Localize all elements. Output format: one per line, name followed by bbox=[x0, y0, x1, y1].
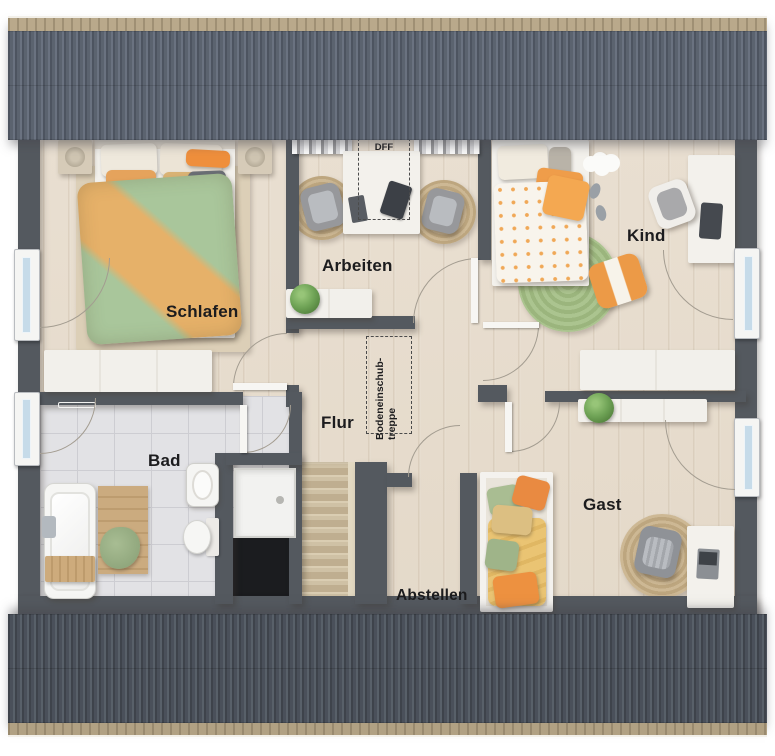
wardrobe-kind bbox=[580, 350, 735, 390]
shower-tray bbox=[234, 468, 296, 538]
staircase-rail bbox=[348, 462, 355, 604]
daybed-pillow-tan bbox=[491, 504, 533, 535]
bathtub-faucet bbox=[42, 516, 56, 538]
wardrobe-schlafen bbox=[44, 350, 212, 392]
room-label-kind: Kind bbox=[627, 226, 666, 246]
wall-arbeiten-kind bbox=[478, 138, 491, 260]
room-label-flur: Flur bbox=[321, 413, 354, 433]
sink-bowl bbox=[192, 470, 213, 500]
plant-gast bbox=[584, 393, 614, 423]
kids-monitor bbox=[699, 202, 723, 239]
door-leaf-bad bbox=[240, 405, 247, 453]
roof-window-label: DFF bbox=[358, 142, 410, 153]
attic-hatch-label: Bodeneinschub- treppe bbox=[374, 330, 404, 440]
cloud-decor bbox=[592, 152, 608, 168]
roof-bottom-surface bbox=[8, 614, 767, 723]
wall-stairwell bbox=[355, 462, 387, 604]
daybed-pillow-green2 bbox=[484, 538, 520, 572]
roof-bottom-ridge bbox=[8, 723, 767, 737]
lamp-left bbox=[65, 147, 85, 167]
toilet-bowl bbox=[183, 520, 211, 554]
shower-drain bbox=[276, 496, 284, 504]
floor-plan: DFF Bodeneinschub- treppe Schlafen Arbei… bbox=[0, 0, 775, 756]
roof-top-surface bbox=[8, 31, 767, 140]
lamp-right bbox=[245, 147, 265, 167]
window-glass bbox=[744, 425, 753, 490]
attic-hatch-line1: Bodeneinschub- bbox=[374, 330, 386, 440]
roof-bottom bbox=[8, 614, 767, 737]
plant-arbeiten bbox=[290, 284, 320, 314]
pillow-bright-orange bbox=[186, 149, 231, 168]
window-glass bbox=[22, 257, 31, 333]
roof-top bbox=[8, 16, 767, 140]
door-leaf-kind bbox=[483, 322, 539, 328]
kids-duvet-fold bbox=[541, 174, 590, 222]
wall-stub-kind bbox=[478, 385, 507, 402]
room-label-bad: Bad bbox=[148, 451, 181, 471]
window-glass bbox=[22, 399, 31, 459]
wall-abstellen-right bbox=[460, 473, 477, 604]
attic-hatch-line2: treppe bbox=[386, 330, 398, 440]
bath-caddy bbox=[45, 556, 95, 582]
room-label-abstellen: Abstellen bbox=[396, 587, 468, 605]
room-label-arbeiten: Arbeiten bbox=[322, 256, 393, 276]
door-leaf-schlafen bbox=[233, 383, 287, 390]
room-label-schlafen: Schlafen bbox=[166, 302, 238, 322]
laptop-screen bbox=[699, 552, 718, 566]
daybed-pillow-orange2 bbox=[492, 571, 540, 609]
bookshelf-right bbox=[414, 138, 480, 154]
door-leaf-gast bbox=[505, 402, 512, 452]
exterior-wall-right bbox=[735, 138, 757, 617]
roof-top-ridge bbox=[8, 16, 767, 31]
exterior-wall-left bbox=[18, 138, 40, 617]
wall-shower-top bbox=[226, 453, 302, 465]
door-leaf-arbeiten bbox=[471, 258, 478, 323]
window-glass bbox=[744, 256, 753, 331]
room-label-gast: Gast bbox=[583, 495, 622, 515]
